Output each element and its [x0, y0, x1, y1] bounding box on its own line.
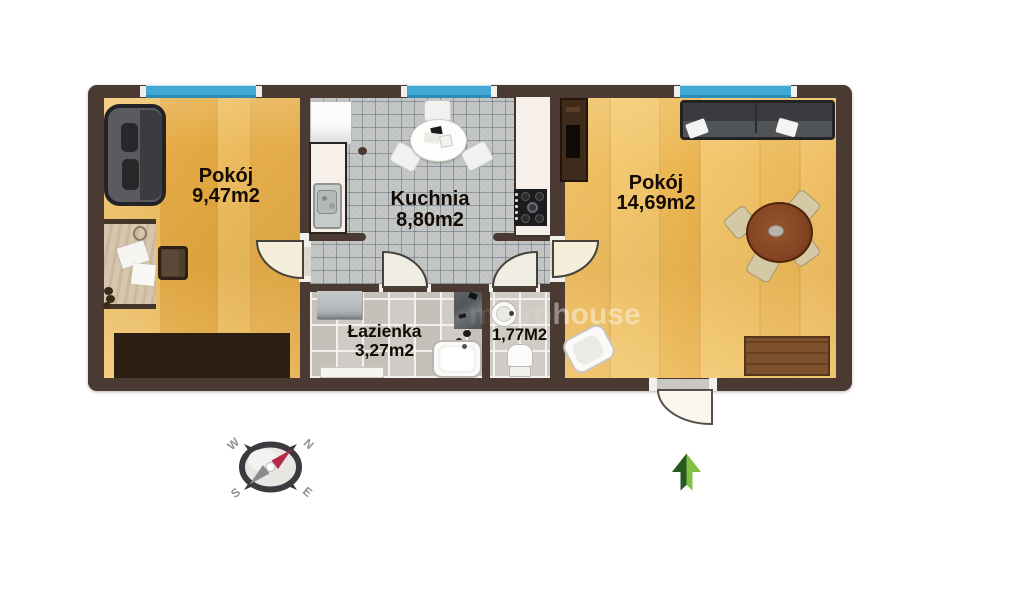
- svg-text:S: S: [228, 485, 243, 501]
- svg-text:E: E: [300, 484, 315, 500]
- svg-text:W: W: [224, 435, 242, 453]
- svg-text:N: N: [301, 436, 317, 452]
